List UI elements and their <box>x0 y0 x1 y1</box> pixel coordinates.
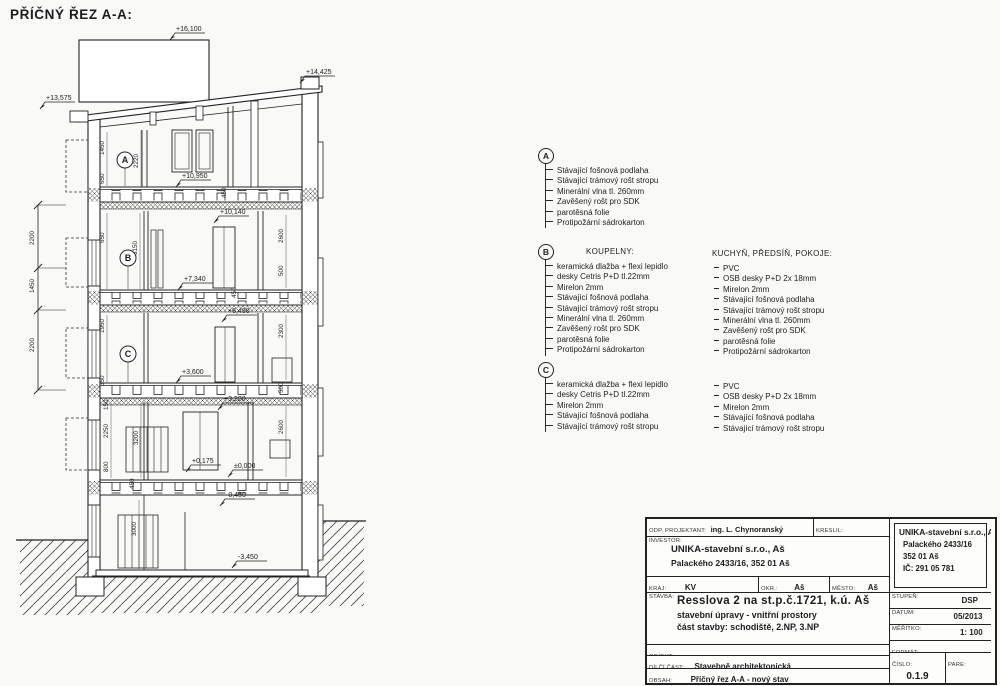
obsah-value: Příčný řez A-A - nový stav <box>677 675 789 683</box>
cislo-value: 0.1.9 <box>890 671 945 682</box>
legend-c-left-list: keramická dlažba + flexi lepidlodesky Ce… <box>545 378 668 432</box>
legend-b-right: KUCHYŇ, PŘEDSÍŇ, POKOJE: PVCOSB desky P+… <box>712 246 832 358</box>
interior-elements <box>118 101 292 570</box>
elevation-flag <box>178 283 213 290</box>
legend-item: Stávající fošnová podlaha <box>712 413 824 423</box>
section-marker-label: B <box>125 253 132 263</box>
dimension-label: 2200 <box>29 230 36 245</box>
mesto-value: Aš <box>860 583 878 592</box>
drawing-sheet: PŘÍČNÝ ŘEZ A-A: <box>0 0 1000 686</box>
elevation-flag <box>228 470 263 477</box>
legend-item: OSB desky P+D 2x 18mm <box>712 392 824 402</box>
dimension-label: 1450 <box>99 140 106 155</box>
legend-item: Protipožární sádrokarton <box>712 347 832 357</box>
elevation-flag <box>232 561 267 568</box>
legend-item: keramická dlažba + flexi lepidlo <box>546 380 668 390</box>
stupen-label: STUPEŇ: <box>890 593 919 600</box>
legend-item: Stávající trámový rošt stropu <box>546 176 658 186</box>
elevation-flag-tip <box>220 502 225 506</box>
legend-item: desky Cetris P+D tl.22mm <box>546 390 668 400</box>
legend-item: Mirelon 2mm <box>712 285 832 295</box>
dimension-label: 800 <box>103 461 110 472</box>
investor-line1: UNIKA-stavební s.r.o., Aš <box>647 544 889 555</box>
legend-item: Mirelon 2mm <box>546 401 668 411</box>
legend-b-right-list: PVCOSB desky P+D 2x 18mmMirelon 2mmStáva… <box>712 262 832 358</box>
legend-item: Protipožární sádrokarton <box>546 345 668 355</box>
legend-item: Stávající trámový rošt stropu <box>712 424 824 434</box>
dimension-label: 2200 <box>29 337 36 352</box>
legend-a: A Stávající fošnová podlahaStávající trá… <box>538 148 658 228</box>
section-marker-label: C <box>125 349 132 359</box>
firm-name: UNIKA-stavební s.r.o., Aš <box>899 527 982 537</box>
elevation-flag <box>170 33 205 40</box>
legend-item: Zavěšený rošt pro SDK <box>546 324 668 334</box>
elevation-flag-tip <box>176 183 181 187</box>
dilci-value: Stavebně architektonická <box>689 662 791 669</box>
elevation-label: ±0,000 <box>234 463 255 470</box>
legend-item: Stávající fošnová podlaha <box>546 411 668 421</box>
legend-item: Zavěšený rošt pro SDK <box>712 326 832 336</box>
legend-item: Stávající trámový rošt stropu <box>546 422 668 432</box>
meritko-value: 1: 100 <box>922 625 991 640</box>
dimension-label: 2600 <box>278 228 285 243</box>
legend-b-left-list: keramická dlažba + flexi lepidlodesky Ce… <box>545 260 668 356</box>
elevation-label: -0,450 <box>226 492 246 499</box>
elevation-label: +0,175 <box>192 458 214 465</box>
elevation-flag <box>176 180 211 187</box>
legend-item: Protipožární sádrokarton <box>546 218 658 228</box>
elevation-flag <box>186 465 221 472</box>
dimension-label: 500 <box>278 382 285 393</box>
stavba-label: STAVBA: <box>647 593 674 600</box>
elevation-label: +3,200 <box>224 396 246 403</box>
elevation-label: +3,600 <box>182 369 204 376</box>
dimension-label: 450 <box>129 478 136 489</box>
legend-c-right-list: PVCOSB desky P+D 2x 18mmMirelon 2mmStáva… <box>712 380 824 434</box>
legend-item: Minerální vlna tl. 260mm <box>546 187 658 197</box>
stupen-value: DSP <box>919 593 991 608</box>
dimension-label: 3000 <box>131 521 138 536</box>
elevation-label: +16,100 <box>176 26 202 33</box>
dimension-label: 3200 <box>133 430 140 445</box>
elevation-label: +7,340 <box>184 276 206 283</box>
firewall-block <box>79 40 209 102</box>
legend-item: parotěsná folie <box>546 335 668 345</box>
investor-label: INVESTOR: <box>647 537 889 544</box>
dimension-label: 1950 <box>99 318 106 333</box>
elevation-label: +10,140 <box>220 209 246 216</box>
kraj-value: KV <box>671 583 696 592</box>
pare-label: PARE: <box>946 661 966 668</box>
legend-item: Stávající trámový rošt stropu <box>712 306 832 316</box>
dimension-label: 2300 <box>278 323 285 338</box>
firm-addr2: 352 01 Aš <box>899 552 982 561</box>
dimension-label: 150 <box>103 399 110 410</box>
elevation-flag-tip <box>222 318 227 322</box>
legend-b: B KOUPELNY: keramická dlažba + flexi lep… <box>538 244 668 356</box>
datum-label: DATUM: <box>890 609 915 616</box>
meritko-label: MĚŘÍTKO: <box>890 625 922 632</box>
legend-item: OSB desky P+D 2x 18mm <box>712 274 832 284</box>
elevation-flag-tip <box>176 379 181 383</box>
legend-b-marker: B <box>538 244 554 260</box>
stavba-line3: část stavby: schodiště, 2.NP, 3.NP <box>647 620 889 632</box>
dimension-label: 350 <box>99 375 106 386</box>
legend-item: Mirelon 2mm <box>546 283 668 293</box>
stavba-line1: Resslova 2 na st.p.č.1721, k.ú. Aš <box>647 593 889 607</box>
elevation-flag <box>214 216 249 223</box>
legend-c-marker: C <box>538 362 554 378</box>
dimension-label: 450 <box>221 187 228 198</box>
legend-c: C keramická dlažba + flexi lepidlodesky … <box>538 362 668 432</box>
elevation-flag-tip <box>178 286 183 290</box>
elevation-label: +6,490 <box>228 308 250 315</box>
legend-item: PVC <box>712 382 824 392</box>
legend-a-list: Stávající fošnová podlahaStávající trámo… <box>545 164 658 228</box>
dimension-label: 500 <box>278 265 285 276</box>
elevation-label: -3,450 <box>238 554 258 561</box>
legend-b-right-title: KUCHYŇ, PŘEDSÍŇ, POKOJE: <box>712 246 832 262</box>
legend-item: desky Cetris P+D tl.22mm <box>546 272 668 282</box>
elevation-flag <box>222 315 257 322</box>
legend-item: Stávající fošnová podlaha <box>546 293 668 303</box>
legend-c-right: PVCOSB desky P+D 2x 18mmMirelon 2mmStáva… <box>712 380 824 434</box>
firm-addr1: Palackého 2433/16 <box>899 540 982 549</box>
demolition-dashed-outlines <box>66 140 88 470</box>
mesto-label: MĚSTO: <box>830 585 855 592</box>
section-marker-label: A <box>122 155 129 165</box>
legend-item: Stávající fošnová podlaha <box>546 166 658 176</box>
elevation-flag-tip <box>228 473 233 477</box>
legend-item: Zavěšený rošt pro SDK <box>546 197 658 207</box>
legend-item: PVC <box>712 264 832 274</box>
legend-a-marker: A <box>538 148 554 164</box>
dimension-label: 2600 <box>278 419 285 434</box>
dimension-label: 2220 <box>133 153 140 168</box>
elevation-flag-tip <box>218 406 223 410</box>
dimension-label: 650 <box>99 232 106 243</box>
elevation-label: +14,425 <box>306 69 332 76</box>
projektant-label: ODP. PROJEKTANT: <box>647 527 706 534</box>
elevation-flag-tip <box>40 105 45 109</box>
dimension-chain <box>34 201 66 394</box>
dimension-label: 1450 <box>29 278 36 293</box>
title-block: ODP. PROJEKTANT: ing. L. Chynoranský (č.… <box>645 517 997 685</box>
investor-line2: Palackého 2433/16, 352 01 Aš <box>647 558 889 568</box>
firm-ic: IČ: 291 05 781 <box>899 564 982 573</box>
kraj-label: KRAJ: <box>647 585 666 592</box>
kreslil-label: KRESLIL: <box>814 527 843 534</box>
dimension-label: 650 <box>99 173 106 184</box>
obsah-label: OBSAH: <box>647 677 672 683</box>
elevation-flag-tip <box>214 219 219 223</box>
legend-item: Minerální vlna tl. 260mm <box>546 314 668 324</box>
dimension-label: 2250 <box>103 423 110 438</box>
elevation-flag <box>40 102 75 109</box>
legend-item: Stávající fošnová podlaha <box>712 295 832 305</box>
legend-item: keramická dlažba + flexi lepidlo <box>546 262 668 272</box>
elevation-label: +13,575 <box>46 95 72 102</box>
legend-item: Stávající trámový rošt stropu <box>546 304 668 314</box>
cislo-label: ČÍSLO: <box>890 661 912 668</box>
stavba-line2: stavební úpravy - vnitřní prostory <box>647 607 889 620</box>
legend-b-left-title: KOUPELNY: <box>586 247 634 257</box>
firm-card: UNIKA-stavební s.r.o., Aš Palackého 2433… <box>894 523 987 588</box>
okres-label: OKR.: <box>759 585 778 592</box>
legend-item: parotěsná folie <box>712 337 832 347</box>
okres-value: Aš <box>782 583 804 592</box>
elevation-flag <box>220 499 255 506</box>
legend-item: Minerální vlna tl. 260mm <box>712 316 832 326</box>
elevation-flag <box>176 376 211 383</box>
legend-item: parotěsná folie <box>546 208 658 218</box>
dimension-label: 450 <box>231 287 238 298</box>
legend-item: Mirelon 2mm <box>712 403 824 413</box>
datum-value: 05/2013 <box>915 609 991 624</box>
elevation-label: +10,950 <box>182 173 208 180</box>
